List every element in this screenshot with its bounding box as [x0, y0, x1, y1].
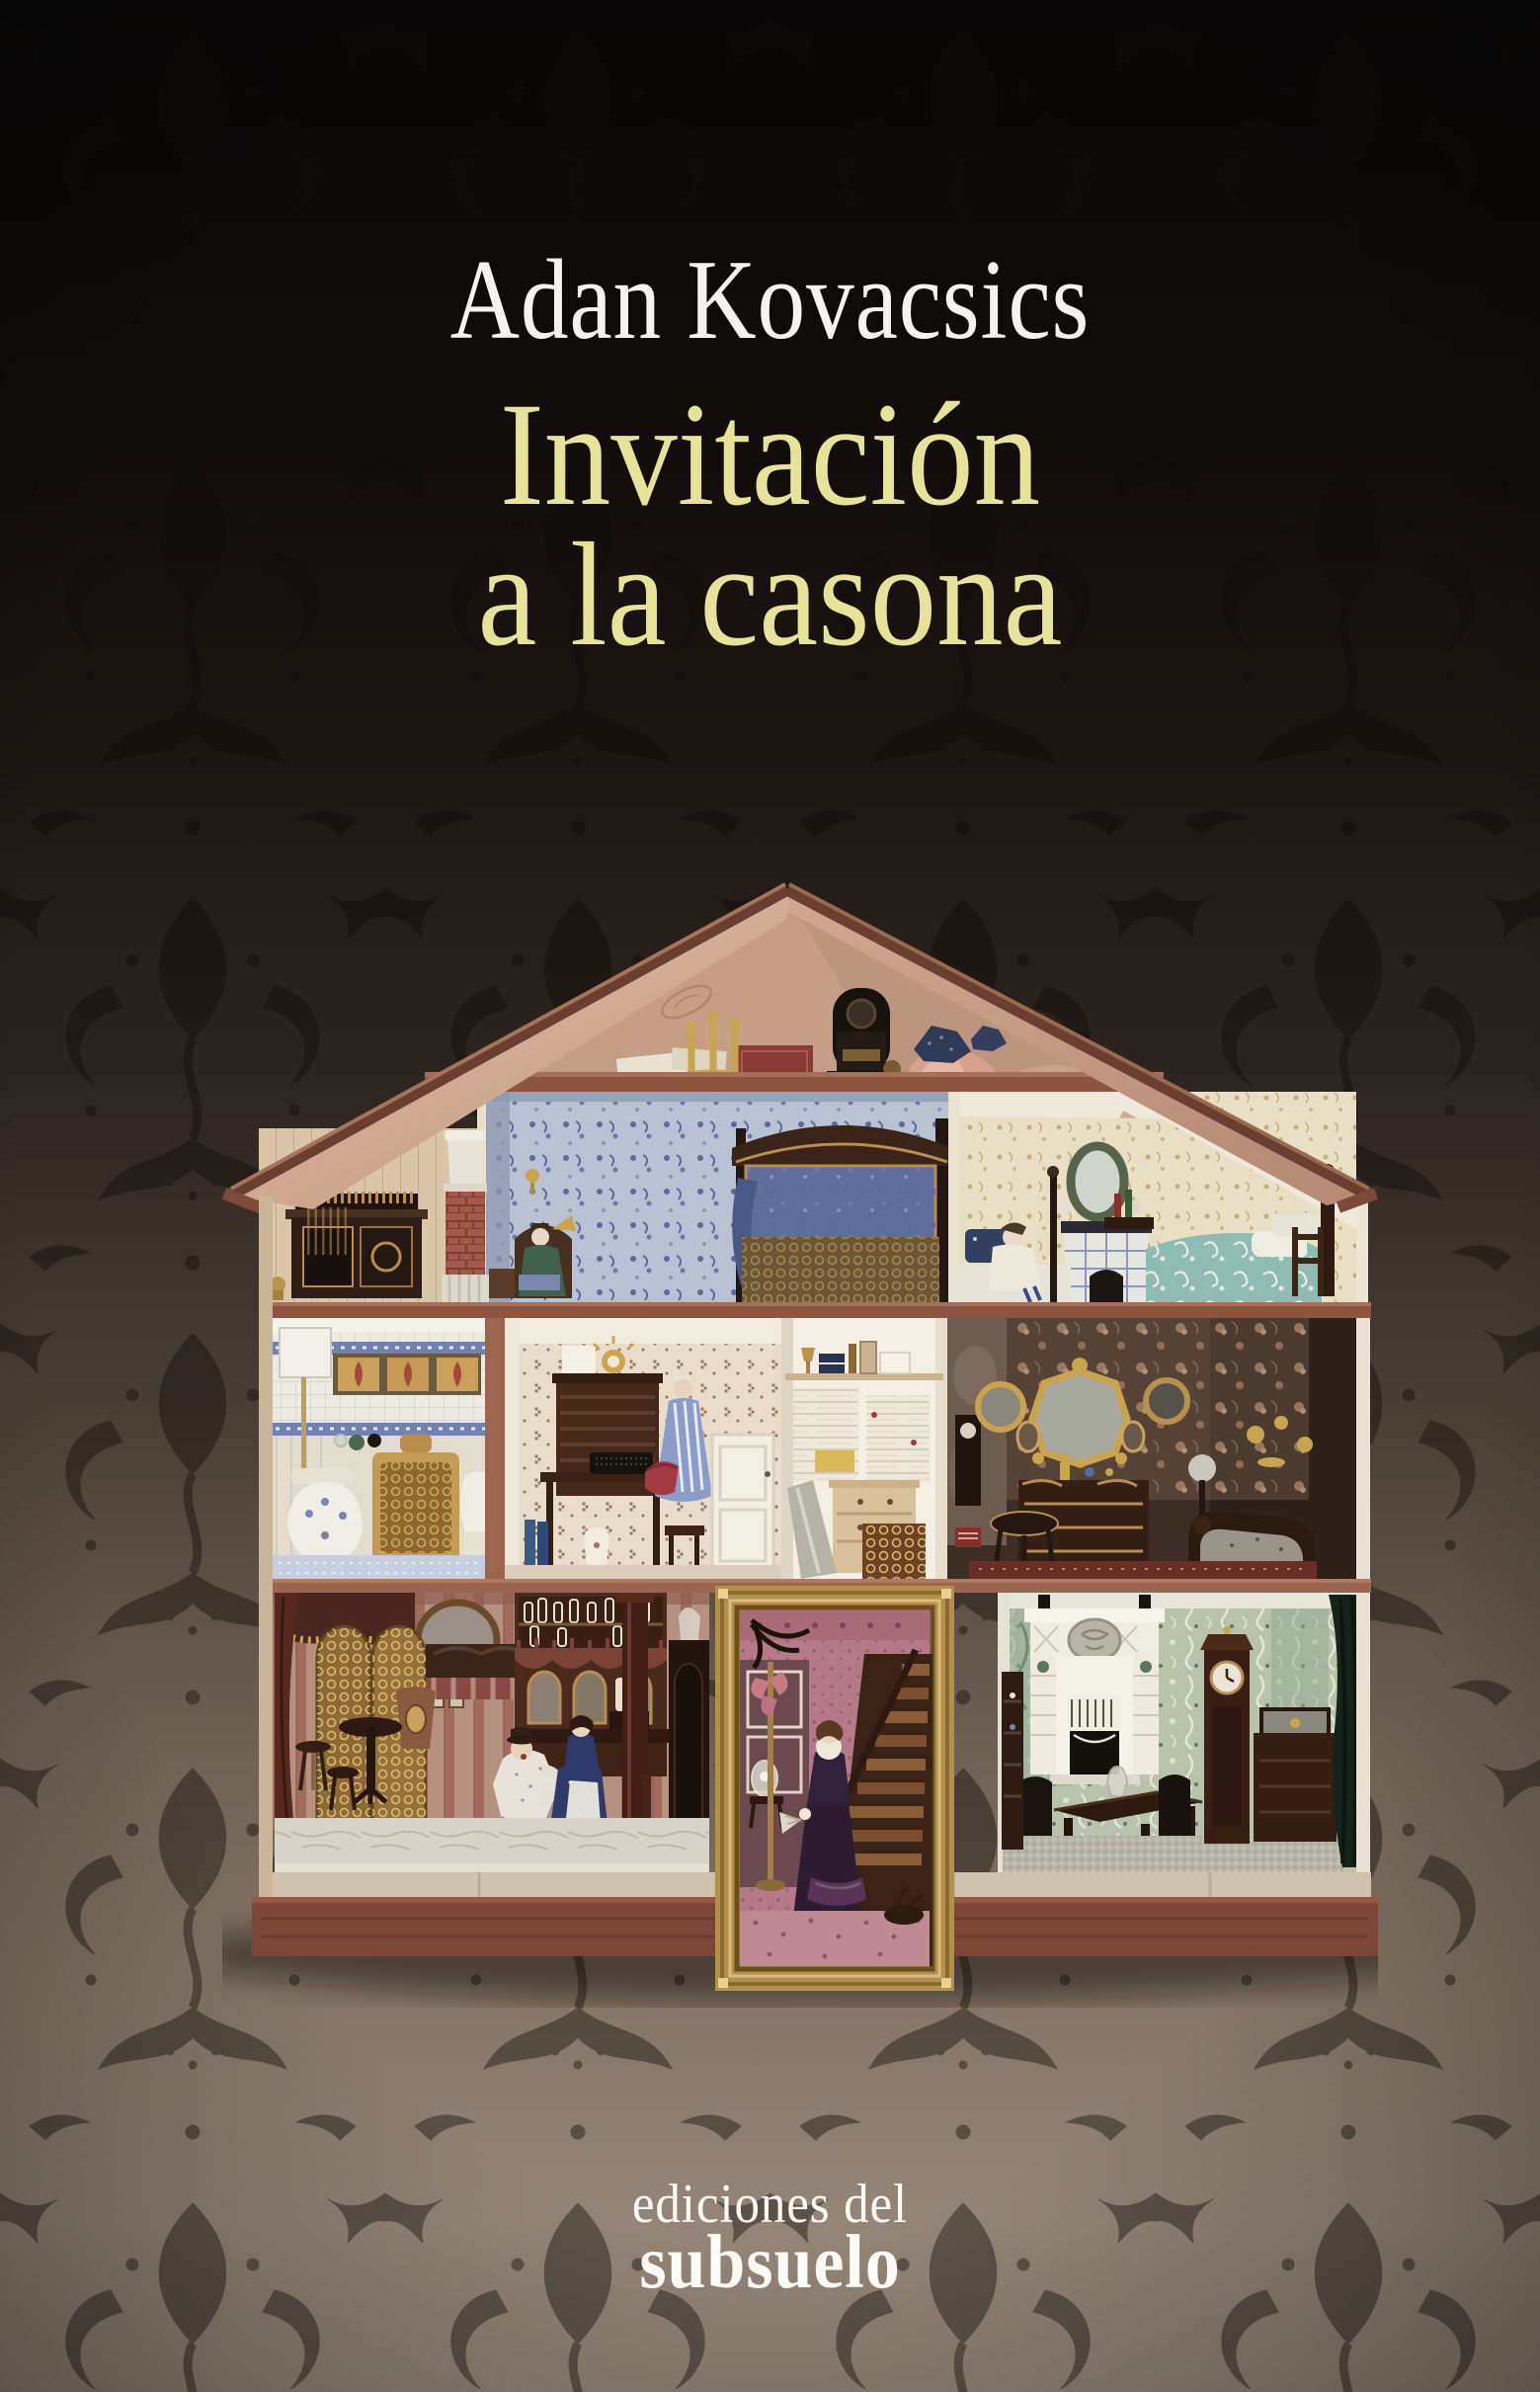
- middle-level: [265, 1318, 1370, 1579]
- delft-stove: [1061, 1221, 1152, 1302]
- dining-room: [998, 1593, 1370, 1891]
- boudoir: [947, 1318, 1356, 1579]
- linen-closet: [781, 1318, 947, 1579]
- attic-blue-bedroom: [477, 1092, 960, 1302]
- longcase-clock: [1200, 1626, 1254, 1844]
- round-mirror: [978, 1384, 1023, 1430]
- title-line-2: a la casona: [77, 525, 1463, 665]
- dollhouse-illustration: [222, 881, 1378, 2008]
- bathroom: [265, 1318, 496, 1579]
- book-cover: Adan Kovacsics Invitación a la casona: [0, 0, 1540, 2392]
- publisher-line-2: subsuelo: [69, 2230, 1471, 2293]
- study: [505, 1318, 781, 1579]
- left-exterior-wall: [259, 1196, 273, 1897]
- chimney: [442, 1130, 489, 1302]
- stained-glass-panels: [333, 1354, 481, 1395]
- candlesticks: [684, 1012, 743, 1080]
- title-line-1: Invitación: [77, 384, 1463, 525]
- book-title: Invitación a la casona: [77, 384, 1463, 665]
- attic-cabinet: [285, 1194, 428, 1298]
- canopy-bed: [732, 1118, 951, 1302]
- author-name: Adan Kovacsics: [123, 243, 1418, 358]
- publisher-logo: ediciones del subsuelo: [69, 2179, 1471, 2293]
- white-fireplace: [1024, 1595, 1165, 1784]
- tavern-parlour: [272, 1593, 709, 1872]
- middle-floor-highlight: [259, 1579, 1371, 1583]
- attic-floor-highlight: [259, 1302, 1371, 1306]
- sideboard: [1254, 1709, 1337, 1842]
- attic-rafter-bedroom: [960, 1092, 1368, 1302]
- gilt-frame-staircase-hall: [715, 1586, 954, 1991]
